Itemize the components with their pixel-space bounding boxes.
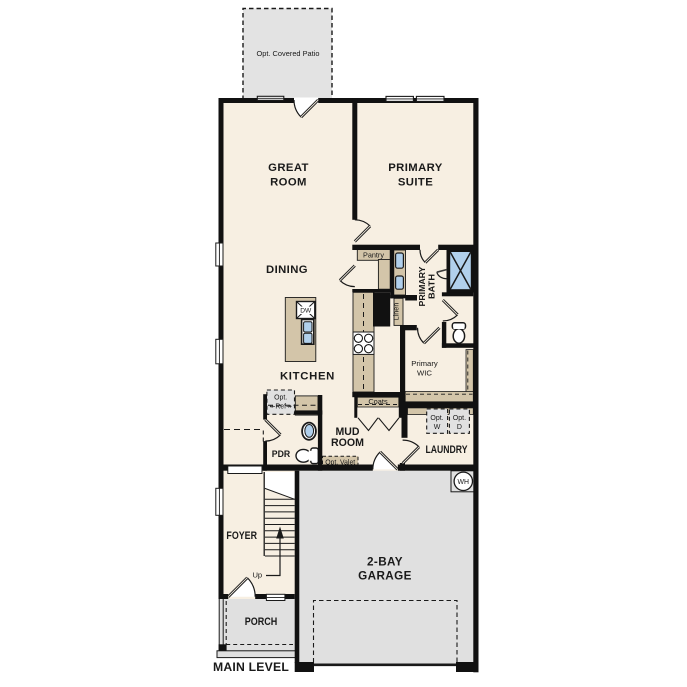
svg-text:PRIMARY: PRIMARY — [417, 266, 427, 306]
svg-text:W: W — [434, 424, 441, 431]
svg-text:DW: DW — [300, 308, 312, 315]
svg-text:Opt.: Opt. — [430, 415, 443, 422]
svg-text:Primary: Primary — [411, 359, 438, 368]
svg-text:BATH: BATH — [426, 274, 436, 299]
svg-text:DINING: DINING — [266, 264, 308, 276]
svg-text:D: D — [457, 424, 462, 431]
svg-text:Coats: Coats — [368, 397, 388, 406]
svg-text:GARAGE: GARAGE — [358, 570, 412, 583]
svg-text:ROOM: ROOM — [331, 437, 364, 449]
svg-text:PORCH: PORCH — [245, 616, 278, 628]
svg-text:WIC: WIC — [417, 369, 432, 378]
svg-text:KITCHEN: KITCHEN — [280, 371, 335, 383]
svg-text:ROOM: ROOM — [270, 177, 307, 189]
svg-text:LAUNDRY: LAUNDRY — [426, 444, 469, 456]
svg-text:GREAT: GREAT — [268, 162, 309, 174]
svg-text:Opt.: Opt. — [274, 395, 287, 402]
svg-text:Pantry: Pantry — [363, 251, 384, 260]
svg-text:FOYER: FOYER — [226, 530, 257, 542]
svg-text:Opt.: Opt. — [453, 415, 466, 422]
svg-text:MAIN LEVEL: MAIN LEVEL — [213, 661, 289, 674]
svg-text:2-BAY: 2-BAY — [367, 556, 403, 569]
svg-text:PDR: PDR — [272, 449, 291, 459]
svg-text:Opt. Covered Patio: Opt. Covered Patio — [257, 49, 320, 58]
svg-text:↞Ref↠: ↞Ref↠ — [270, 404, 292, 411]
svg-text:PRIMARY: PRIMARY — [388, 162, 443, 174]
svg-text:SUITE: SUITE — [398, 177, 433, 189]
svg-text:Linen: Linen — [392, 303, 401, 321]
svg-text:WH: WH — [458, 479, 470, 486]
svg-text:Up: Up — [252, 571, 262, 580]
